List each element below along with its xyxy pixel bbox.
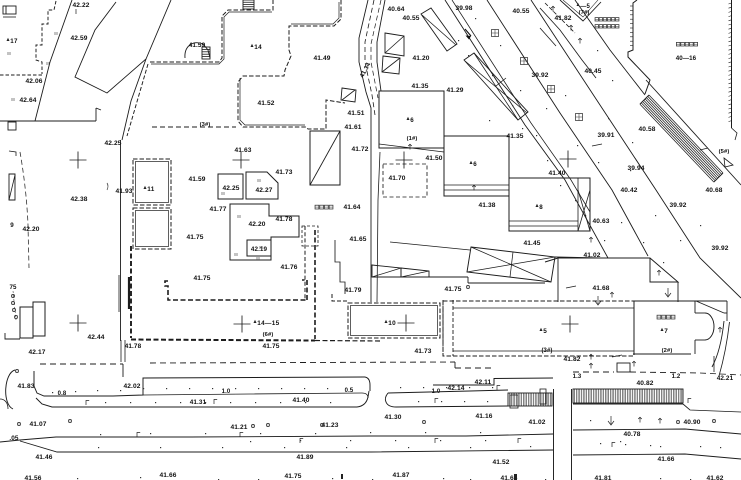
svg-text:41.20: 41.20: [412, 55, 429, 62]
svg-text:41.93: 41.93: [115, 188, 132, 195]
svg-text:14: 14: [254, 44, 262, 51]
svg-text:41.35: 41.35: [411, 83, 428, 90]
svg-text:40.68: 40.68: [705, 187, 722, 194]
svg-text:(3#): (3#): [200, 122, 211, 128]
svg-text:41.77: 41.77: [209, 206, 226, 213]
svg-text:40.55: 40.55: [402, 15, 419, 22]
svg-text:39.91: 39.91: [597, 132, 614, 139]
svg-text:41.31: 41.31: [190, 399, 207, 406]
svg-text:42.25: 42.25: [222, 185, 239, 192]
svg-text:40.55: 40.55: [512, 8, 529, 15]
svg-text:41.30: 41.30: [384, 414, 401, 421]
svg-text:41.89: 41.89: [296, 454, 313, 461]
svg-text:41.21: 41.21: [230, 424, 247, 431]
svg-text:(6#): (6#): [263, 332, 274, 338]
svg-text:7: 7: [664, 328, 668, 335]
svg-text:41.02: 41.02: [583, 252, 600, 259]
svg-text:1.3: 1.3: [573, 374, 582, 380]
svg-text:42.22: 42.22: [72, 2, 89, 9]
svg-text:41.75: 41.75: [193, 275, 210, 282]
svg-text:41.45: 41.45: [523, 240, 540, 247]
svg-text:42.38: 42.38: [70, 196, 87, 203]
svg-text:41.02: 41.02: [528, 419, 545, 426]
svg-text:41.62: 41.62: [706, 475, 723, 480]
svg-text:41.73: 41.73: [414, 348, 431, 355]
svg-text:41.63: 41.63: [234, 147, 251, 154]
svg-text:42.27: 42.27: [255, 187, 272, 194]
svg-text:40—16: 40—16: [676, 55, 697, 62]
svg-text:42.02: 42.02: [123, 383, 140, 390]
svg-text:41.51: 41.51: [347, 110, 364, 117]
svg-text:41.40: 41.40: [292, 397, 309, 404]
svg-text:9: 9: [10, 222, 14, 229]
svg-text:41.79: 41.79: [344, 287, 361, 294]
svg-text:41.76: 41.76: [280, 264, 297, 271]
svg-text:42.11: 42.11: [475, 379, 492, 386]
svg-text:42.64: 42.64: [19, 97, 36, 104]
svg-text:41.66: 41.66: [159, 472, 176, 479]
svg-text:10: 10: [388, 320, 396, 327]
svg-text:41.65: 41.65: [349, 236, 366, 243]
svg-text:41.78: 41.78: [125, 343, 142, 350]
svg-text:42.25: 42.25: [104, 140, 121, 147]
svg-text:41.75: 41.75: [284, 473, 301, 480]
svg-text:41.75: 41.75: [186, 234, 203, 241]
svg-text:42.06: 42.06: [25, 78, 42, 85]
svg-text:6: 6: [410, 117, 414, 124]
svg-text:39.98: 39.98: [455, 5, 472, 12]
svg-text:17: 17: [10, 38, 18, 45]
svg-text:41.52: 41.52: [492, 459, 509, 466]
svg-text:41.61: 41.61: [344, 124, 361, 131]
svg-text:39.92: 39.92: [531, 72, 548, 79]
svg-text:42.20: 42.20: [248, 221, 265, 228]
svg-text:14—15: 14—15: [257, 320, 279, 327]
svg-text:41.78: 41.78: [275, 216, 292, 223]
svg-text:40.42: 40.42: [620, 187, 637, 194]
svg-text:41.16: 41.16: [475, 413, 492, 420]
svg-text:39.92: 39.92: [669, 202, 686, 209]
svg-text:41.50: 41.50: [425, 155, 442, 162]
svg-text:5: 5: [543, 328, 547, 335]
svg-text:41.59: 41.59: [189, 42, 206, 49]
svg-text:(5#): (5#): [719, 149, 730, 155]
svg-text:41.75: 41.75: [262, 343, 279, 350]
svg-text:75: 75: [9, 284, 17, 291]
svg-text:1.2: 1.2: [672, 374, 681, 380]
svg-text:(7#): (7#): [579, 10, 590, 16]
svg-text:42.59: 42.59: [70, 35, 87, 42]
svg-text:42.20: 42.20: [22, 226, 39, 233]
svg-text:42.19: 42.19: [251, 246, 268, 253]
svg-text:41.87: 41.87: [392, 472, 409, 479]
svg-text:40.63: 40.63: [592, 218, 609, 225]
svg-text:42.21: 42.21: [717, 375, 734, 382]
svg-text:40.45: 40.45: [584, 68, 601, 75]
svg-text:40.90: 40.90: [683, 419, 700, 426]
svg-text:41.73: 41.73: [275, 169, 292, 176]
svg-text:41.29: 41.29: [446, 87, 463, 94]
svg-text:11: 11: [147, 186, 155, 193]
svg-text:40.82: 40.82: [636, 380, 653, 387]
svg-text:42.44: 42.44: [87, 334, 104, 341]
svg-text:41.68: 41.68: [592, 285, 609, 292]
svg-text:40.78: 40.78: [623, 431, 640, 438]
svg-text:41.23: 41.23: [321, 422, 338, 429]
svg-text:6: 6: [473, 161, 477, 168]
svg-text:41.83: 41.83: [17, 383, 34, 390]
svg-text:39.92: 39.92: [711, 245, 728, 252]
svg-text:40.58: 40.58: [638, 126, 655, 133]
svg-text:(2#): (2#): [662, 348, 673, 354]
svg-text:41.56: 41.56: [24, 475, 41, 480]
svg-text:41.38: 41.38: [478, 202, 495, 209]
svg-text:41.46: 41.46: [35, 454, 52, 461]
svg-text:41.81: 41.81: [594, 475, 611, 480]
svg-text:41.66: 41.66: [657, 456, 674, 463]
svg-text:41.64: 41.64: [343, 204, 360, 211]
svg-text:41.75: 41.75: [444, 286, 461, 293]
svg-text:41.82: 41.82: [563, 356, 580, 363]
svg-text:41.72: 41.72: [351, 146, 368, 153]
svg-text:41.07: 41.07: [29, 421, 46, 428]
svg-text:41.52: 41.52: [257, 100, 274, 107]
svg-text:(1#): (1#): [407, 136, 418, 142]
svg-text:41.40: 41.40: [548, 170, 565, 177]
svg-text:41.59: 41.59: [188, 176, 205, 183]
svg-text:41.70: 41.70: [388, 175, 405, 182]
svg-text:41.35: 41.35: [506, 133, 523, 140]
svg-text:42.17: 42.17: [28, 349, 45, 356]
svg-text:41.49: 41.49: [313, 55, 330, 62]
svg-text:8: 8: [539, 204, 543, 211]
svg-text:40.64: 40.64: [387, 6, 404, 13]
svg-text:(3#): (3#): [541, 348, 552, 354]
